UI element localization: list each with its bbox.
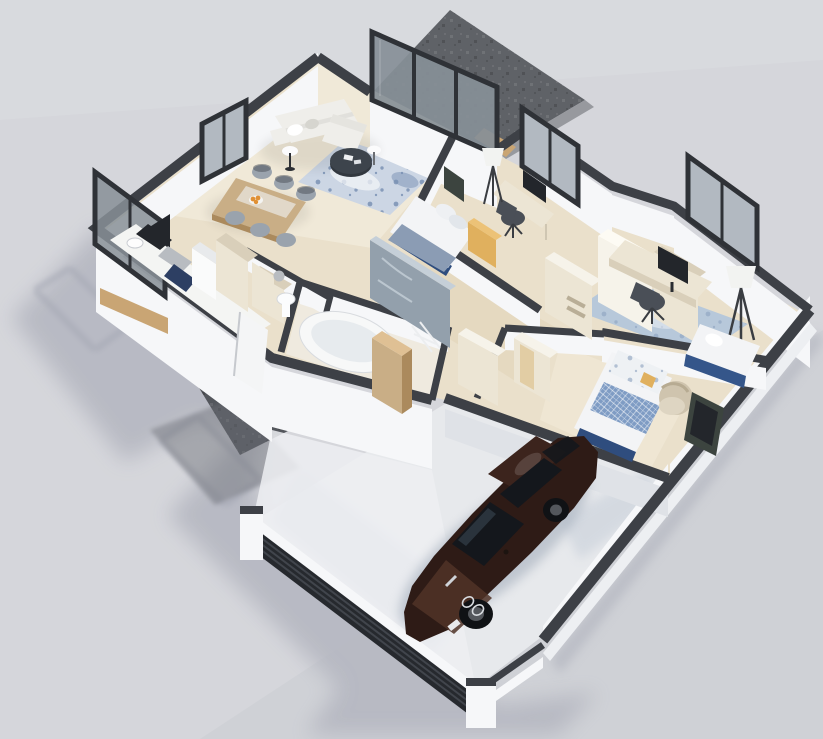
floorplan-scene (0, 0, 823, 739)
side-mirror (504, 550, 509, 555)
floorplan-render (0, 0, 823, 739)
wc-dome-lamp (274, 271, 285, 282)
fruit-bowl (249, 196, 263, 205)
beige-armchair (659, 381, 693, 415)
kitchen-sink (127, 238, 143, 248)
coffee-table (330, 148, 372, 177)
